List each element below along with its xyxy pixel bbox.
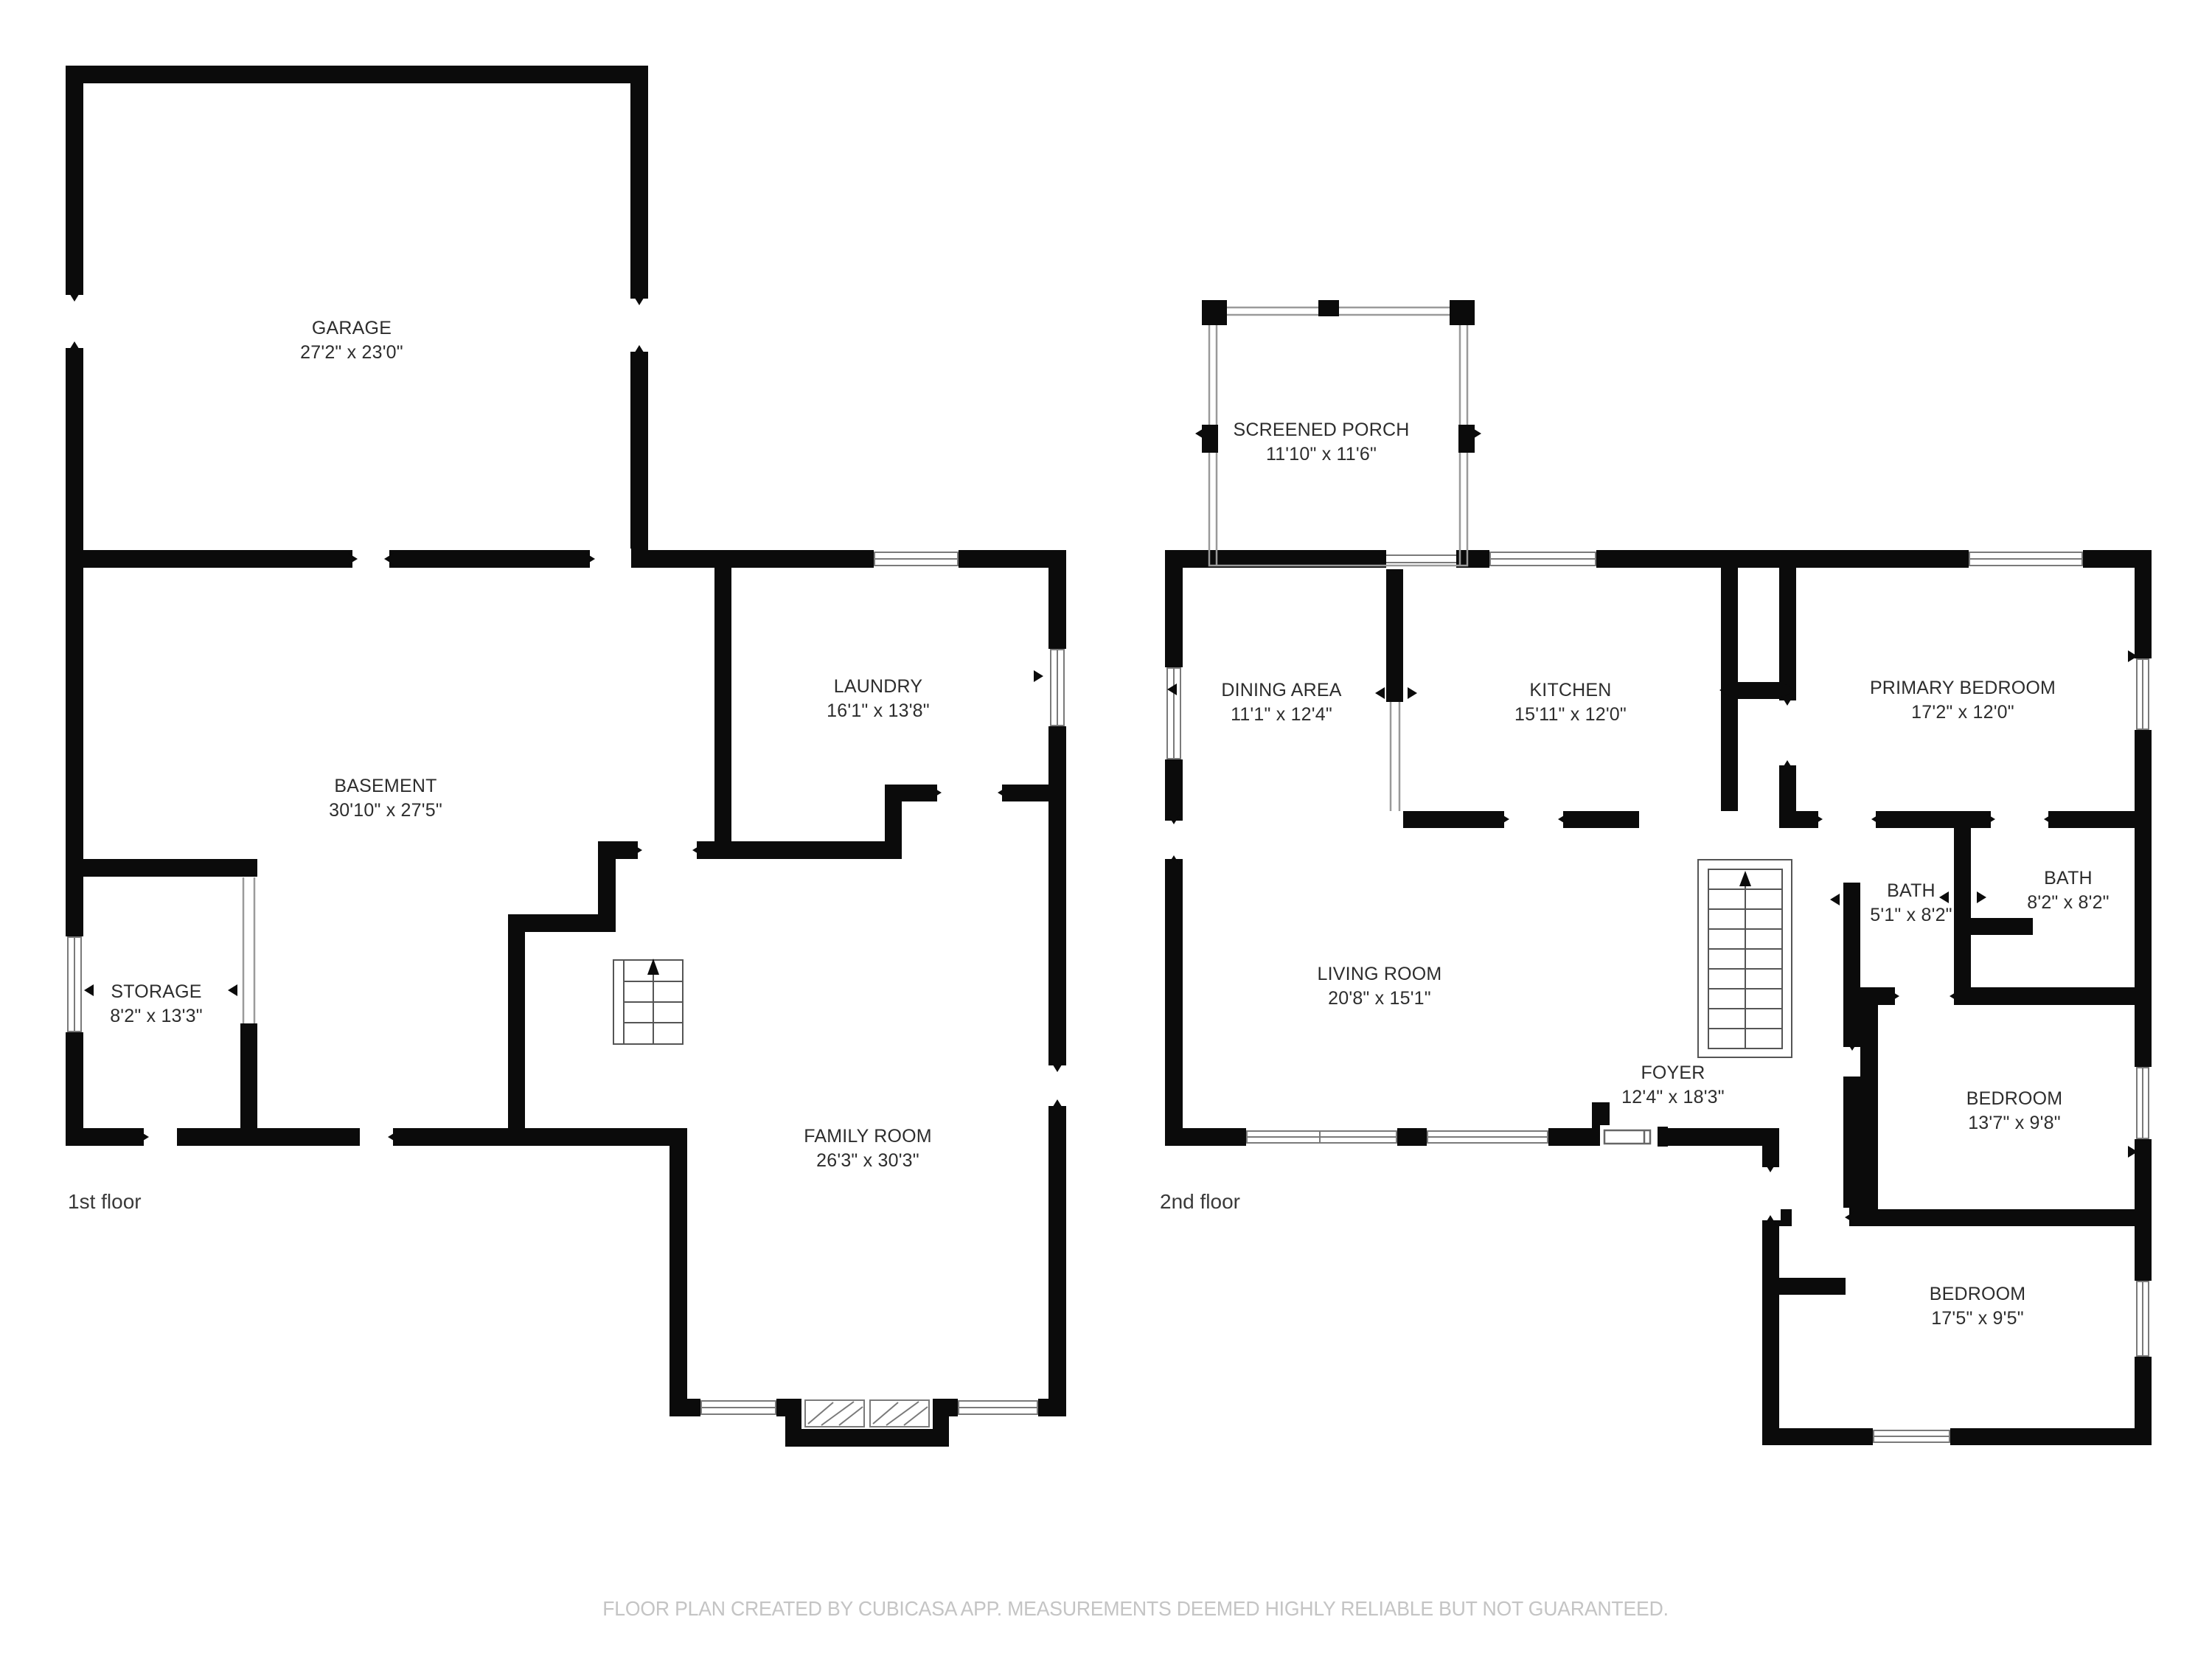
room-name-bath-large: BATH xyxy=(2027,866,2110,891)
dining-kitchen-opening xyxy=(1391,702,1399,811)
room-name-primary-bedroom: PRIMARY BEDROOM xyxy=(1870,676,2056,700)
room-label-foyer: FOYER 12'4" x 18'3" xyxy=(1621,1061,1725,1110)
room-dims-living-room: 20'8" x 15'1" xyxy=(1318,987,1442,1011)
stairs-down-icon xyxy=(1698,860,1792,1057)
room-dims-bath-small: 5'1" x 8'2" xyxy=(1870,903,1952,928)
floor-plan-drawing xyxy=(0,0,2212,1659)
room-dims-storage: 8'2" x 13'3" xyxy=(110,1004,203,1029)
room-label-screened-porch: SCREENED PORCH 11'10" x 11'6" xyxy=(1234,418,1410,467)
entry-door xyxy=(1600,1125,1668,1147)
room-label-garage: GARAGE 27'2" x 23'0" xyxy=(300,316,403,365)
footer-disclaimer: FLOOR PLAN CREATED BY CUBICASA APP. MEAS… xyxy=(602,1597,1669,1621)
room-label-laundry: LAUNDRY 16'1" x 13'8" xyxy=(827,675,930,723)
room-label-basement: BASEMENT 30'10" x 27'5" xyxy=(329,774,442,823)
room-name-laundry: LAUNDRY xyxy=(827,675,930,699)
room-dims-primary-bedroom: 17'2" x 12'0" xyxy=(1870,700,2056,725)
room-name-kitchen: KITCHEN xyxy=(1514,678,1627,703)
floor2-label: 2nd floor xyxy=(1160,1190,1240,1214)
room-dims-screened-porch: 11'10" x 11'6" xyxy=(1234,442,1410,467)
room-name-foyer: FOYER xyxy=(1621,1061,1725,1085)
room-label-bedroom-bottom: BEDROOM 17'5" x 9'5" xyxy=(1930,1282,2026,1331)
stairs-up-icon xyxy=(613,959,683,1044)
room-label-family-room: FAMILY ROOM 26'3" x 30'3" xyxy=(804,1124,932,1173)
room-name-dining-area: DINING AREA xyxy=(1221,678,1341,703)
room-dims-kitchen: 15'11" x 12'0" xyxy=(1514,703,1627,727)
room-label-bedroom-mid: BEDROOM 13'7" x 9'8" xyxy=(1966,1087,2063,1135)
floor-plan-page: GARAGE 27'2" x 23'0" LAUNDRY 16'1" x 13'… xyxy=(0,0,2212,1659)
room-name-basement: BASEMENT xyxy=(329,774,442,799)
room-name-bedroom-bottom: BEDROOM xyxy=(1930,1282,2026,1307)
room-name-garage: GARAGE xyxy=(300,316,403,341)
room-label-bath-large: BATH 8'2" x 8'2" xyxy=(2027,866,2110,915)
room-dims-basement: 30'10" x 27'5" xyxy=(329,799,442,823)
floor1-walls xyxy=(66,66,1066,1416)
room-name-storage: STORAGE xyxy=(110,980,203,1004)
room-dims-foyer: 12'4" x 18'3" xyxy=(1621,1085,1725,1110)
room-name-family-room: FAMILY ROOM xyxy=(804,1124,932,1149)
floor1-label: 1st floor xyxy=(68,1190,142,1214)
storage-opening xyxy=(243,877,254,1023)
room-name-screened-porch: SCREENED PORCH xyxy=(1234,418,1410,442)
room-dims-bedroom-mid: 13'7" x 9'8" xyxy=(1966,1111,2063,1135)
room-dims-bedroom-bottom: 17'5" x 9'5" xyxy=(1930,1307,2026,1331)
room-name-living-room: LIVING ROOM xyxy=(1318,962,1442,987)
room-name-bedroom-mid: BEDROOM xyxy=(1966,1087,2063,1111)
room-label-storage: STORAGE 8'2" x 13'3" xyxy=(110,980,203,1029)
room-label-primary-bedroom: PRIMARY BEDROOM 17'2" x 12'0" xyxy=(1870,676,2056,725)
room-dims-dining-area: 11'1" x 12'4" xyxy=(1221,703,1341,727)
room-name-bath-small: BATH xyxy=(1870,879,1952,903)
room-label-kitchen: KITCHEN 15'11" x 12'0" xyxy=(1514,678,1627,727)
family-room-door-step xyxy=(785,1397,949,1447)
room-label-bath-small: BATH 5'1" x 8'2" xyxy=(1870,879,1952,928)
room-label-dining-area: DINING AREA 11'1" x 12'4" xyxy=(1221,678,1341,727)
room-dims-bath-large: 8'2" x 8'2" xyxy=(2027,891,2110,915)
room-label-living-room: LIVING ROOM 20'8" x 15'1" xyxy=(1318,962,1442,1011)
room-dims-laundry: 16'1" x 13'8" xyxy=(827,699,930,723)
room-dims-family-room: 26'3" x 30'3" xyxy=(804,1149,932,1173)
room-dims-garage: 27'2" x 23'0" xyxy=(300,341,403,365)
